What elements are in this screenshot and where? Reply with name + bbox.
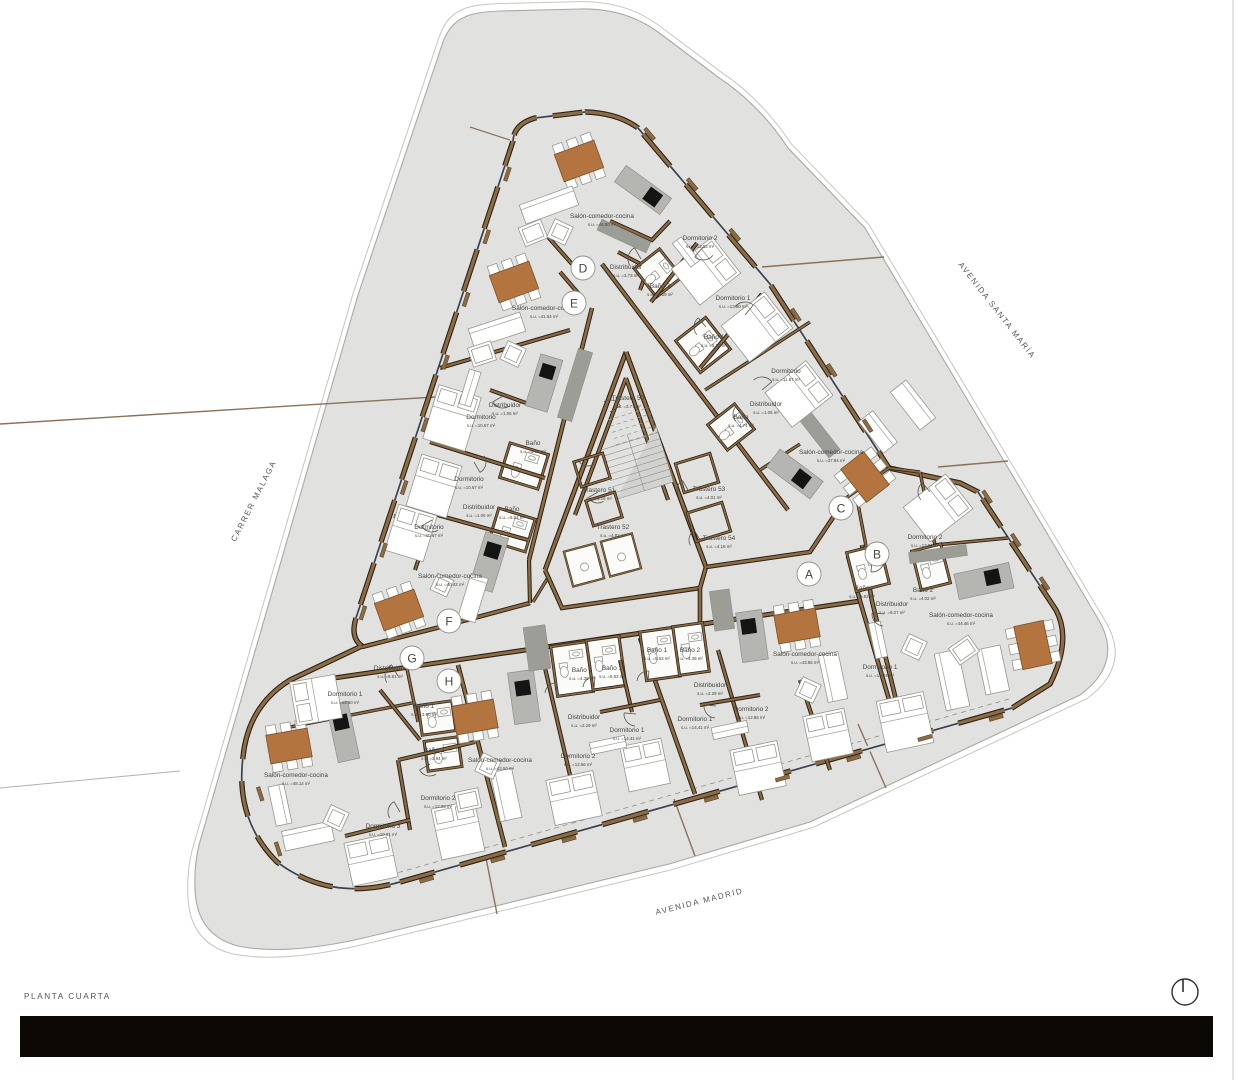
svg-text:Distribuidor: Distribuidor (489, 402, 522, 409)
svg-text:s.u. =12.03 m²: s.u. =12.03 m² (424, 804, 453, 809)
svg-text:s.u. =44.46 m²: s.u. =44.46 m² (947, 621, 976, 626)
svg-text:Trastero 50: Trastero 50 (612, 395, 645, 402)
svg-text:Baño 2: Baño 2 (680, 647, 701, 654)
svg-text:F: F (445, 615, 452, 629)
svg-text:s.u. =1.06 m²: s.u. =1.06 m² (466, 513, 492, 518)
svg-text:Dormitorio: Dormitorio (771, 368, 801, 375)
svg-text:B: B (873, 548, 881, 562)
svg-text:s.u. =14.41 m²: s.u. =14.41 m² (613, 736, 642, 741)
svg-text:Trastero 51: Trastero 51 (583, 487, 616, 494)
svg-text:C: C (837, 502, 846, 516)
svg-text:Salón-comedor-cocina: Salón-comedor-cocina (570, 213, 634, 220)
svg-text:s.u. =4.38 m²: s.u. =4.38 m² (677, 656, 703, 661)
svg-text:Distribuidor: Distribuidor (876, 601, 909, 608)
svg-text:Dormitorio 2: Dormitorio 2 (421, 795, 456, 802)
svg-text:s.u. =4.38 m²: s.u. =4.38 m² (569, 676, 595, 681)
svg-text:D: D (579, 262, 588, 276)
svg-text:Distribuidor: Distribuidor (568, 714, 601, 721)
svg-text:Distribuidor: Distribuidor (374, 665, 407, 672)
svg-text:Dormitorio 3: Dormitorio 3 (366, 823, 401, 830)
svg-text:s.u. =5.12 m²: s.u. =5.12 m² (701, 343, 727, 348)
svg-text:A: A (805, 568, 813, 582)
svg-text:Dormitorio 1: Dormitorio 1 (863, 664, 898, 671)
svg-text:s.u. =15.24 m²: s.u. =15.24 m² (866, 673, 895, 678)
svg-text:E: E (570, 297, 578, 311)
svg-text:Dormitorio: Dormitorio (454, 476, 484, 483)
svg-text:s.u. =1.06 m²: s.u. =1.06 m² (492, 411, 518, 416)
svg-text:Distribuidor: Distribuidor (610, 264, 643, 271)
svg-text:s.u. =43.50 m²: s.u. =43.50 m² (486, 766, 515, 771)
svg-text:Baño: Baño (734, 414, 749, 421)
svg-text:Dormitorio 2: Dormitorio 2 (683, 235, 718, 242)
svg-text:s.u. =40.43 m²: s.u. =40.43 m² (436, 582, 465, 587)
svg-text:s.u. =4.02 m²: s.u. =4.02 m² (910, 596, 936, 601)
svg-text:Distribuidor: Distribuidor (750, 401, 783, 408)
svg-text:Trastero 54: Trastero 54 (703, 535, 736, 542)
svg-text:Dormitorio 2: Dormitorio 2 (561, 753, 596, 760)
svg-text:s.u. =5.82 m²: s.u. =5.82 m² (849, 594, 875, 599)
svg-text:s.u. =10.67 m²: s.u. =10.67 m² (455, 485, 484, 490)
svg-text:Baño 2: Baño 2 (572, 667, 593, 674)
svg-text:G: G (407, 652, 416, 666)
svg-text:Dormitorio 2: Dormitorio 2 (734, 706, 769, 713)
svg-text:s.u. =9.27 m²: s.u. =9.27 m² (879, 610, 905, 615)
svg-text:s.u. =5.04 m²: s.u. =5.04 m² (520, 449, 546, 454)
svg-text:Baño 3: Baño 3 (650, 283, 671, 290)
svg-text:Baño: Baño (855, 585, 870, 592)
svg-text:s.u. =12.86 m²: s.u. =12.86 m² (737, 715, 766, 720)
svg-text:s.u. =13.92 m²: s.u. =13.92 m² (911, 543, 940, 548)
svg-text:Baño 1: Baño 1 (602, 665, 623, 672)
svg-text:Distribuidor: Distribuidor (694, 682, 727, 689)
svg-text:s.u. =3.77 m²: s.u. =3.77 m² (615, 404, 641, 409)
svg-text:s.u. =12.56 m²: s.u. =12.56 m² (564, 762, 593, 767)
svg-text:s.u. =48.14 m²: s.u. =48.14 m² (282, 781, 311, 786)
svg-text:Baño: Baño (505, 506, 520, 513)
svg-text:Dormitorio 1: Dormitorio 1 (716, 295, 751, 302)
svg-text:Trastero 53: Trastero 53 (693, 486, 726, 493)
svg-text:s.u. =43.86 m²: s.u. =43.86 m² (791, 660, 820, 665)
svg-text:Salón-comedor-cocina: Salón-comedor-cocina (773, 651, 837, 658)
svg-text:s.u. =5.04 m²: s.u. =5.04 m² (499, 515, 525, 520)
svg-text:s.u. =14.41 m²: s.u. =14.41 m² (681, 725, 710, 730)
svg-text:Distribuidor: Distribuidor (463, 504, 496, 511)
svg-text:s.u. =5.53 m²: s.u. =5.53 m² (644, 656, 670, 661)
svg-text:s.u. =4.82 m²: s.u. =4.82 m² (600, 533, 626, 538)
svg-text:s.u. =3.94 m²: s.u. =3.94 m² (421, 756, 447, 761)
svg-text:s.u. =2.29 m²: s.u. =2.29 m² (697, 691, 723, 696)
svg-text:Salón-comedor-cocina: Salón-comedor-cocina (418, 573, 482, 580)
svg-text:Salón-comedor-cocina: Salón-comedor-cocina (799, 449, 863, 456)
svg-text:s.u. =5.53 m²: s.u. =5.53 m² (599, 674, 625, 679)
svg-text:s.u. =3.73 m²: s.u. =3.73 m² (613, 273, 639, 278)
svg-text:Trastero 52: Trastero 52 (597, 524, 630, 531)
svg-text:Dormitorio 2: Dormitorio 2 (908, 534, 943, 541)
svg-text:Baño 1: Baño 1 (647, 647, 668, 654)
svg-text:s.u. =13.80 m²: s.u. =13.80 m² (719, 304, 748, 309)
svg-text:Salón-comedor-cocina: Salón-comedor-cocina (468, 757, 532, 764)
svg-text:s.u. =10.61 m²: s.u. =10.61 m² (369, 832, 398, 837)
svg-text:Dormitorio 1: Dormitorio 1 (678, 716, 713, 723)
svg-text:s.u. =4.16 m²: s.u. =4.16 m² (706, 544, 732, 549)
svg-text:Dormitorio 1: Dormitorio 1 (328, 691, 363, 698)
svg-text:s.u. =4.16 m²: s.u. =4.16 m² (586, 496, 612, 501)
svg-text:Baño 1: Baño 1 (414, 703, 435, 710)
svg-text:Baño 2: Baño 2 (424, 747, 445, 754)
svg-text:Dormitorio 1: Dormitorio 1 (610, 727, 645, 734)
svg-text:s.u. =4.74 m²: s.u. =4.74 m² (728, 423, 754, 428)
svg-text:s.u. =37.84 m²: s.u. =37.84 m² (817, 458, 846, 463)
svg-text:s.u. =46.80 m²: s.u. =46.80 m² (588, 222, 617, 227)
svg-text:s.u. =10.67 m²: s.u. =10.67 m² (467, 423, 496, 428)
svg-text:s.u. =3.59 m²: s.u. =3.59 m² (647, 292, 673, 297)
svg-text:s.u. =13.60 m²: s.u. =13.60 m² (331, 700, 360, 705)
svg-text:s.u. =11.87 m²: s.u. =11.87 m² (772, 377, 800, 382)
svg-text:Baño 1: Baño 1 (704, 334, 725, 341)
svg-text:Baño 2: Baño 2 (913, 587, 934, 594)
svg-text:s.u. =10.67 m²: s.u. =10.67 m² (415, 533, 444, 538)
svg-text:s.u. =9.51 m²: s.u. =9.51 m² (377, 674, 403, 679)
svg-text:Salón-comedor-cocina: Salón-comedor-cocina (929, 612, 993, 619)
svg-text:s.u. =41.54 m²: s.u. =41.54 m² (530, 314, 559, 319)
svg-text:Salón-comedor-cocina: Salón-comedor-cocina (264, 772, 328, 779)
svg-text:s.u. =3.90 m²: s.u. =3.90 m² (411, 712, 437, 717)
svg-text:s.u. =4.01 m²: s.u. =4.01 m² (696, 495, 722, 500)
svg-text:Dormitorio: Dormitorio (466, 414, 496, 421)
svg-text:s.u. =1.05 m²: s.u. =1.05 m² (753, 410, 779, 415)
svg-text:Dormitorio: Dormitorio (414, 524, 444, 531)
svg-text:PLANTA CUARTA: PLANTA CUARTA (24, 992, 111, 1001)
svg-text:s.u. =12.92 m²: s.u. =12.92 m² (686, 244, 715, 249)
svg-text:Baño: Baño (526, 440, 541, 447)
svg-text:H: H (445, 675, 454, 689)
svg-text:s.u. =2.29 m²: s.u. =2.29 m² (571, 723, 597, 728)
